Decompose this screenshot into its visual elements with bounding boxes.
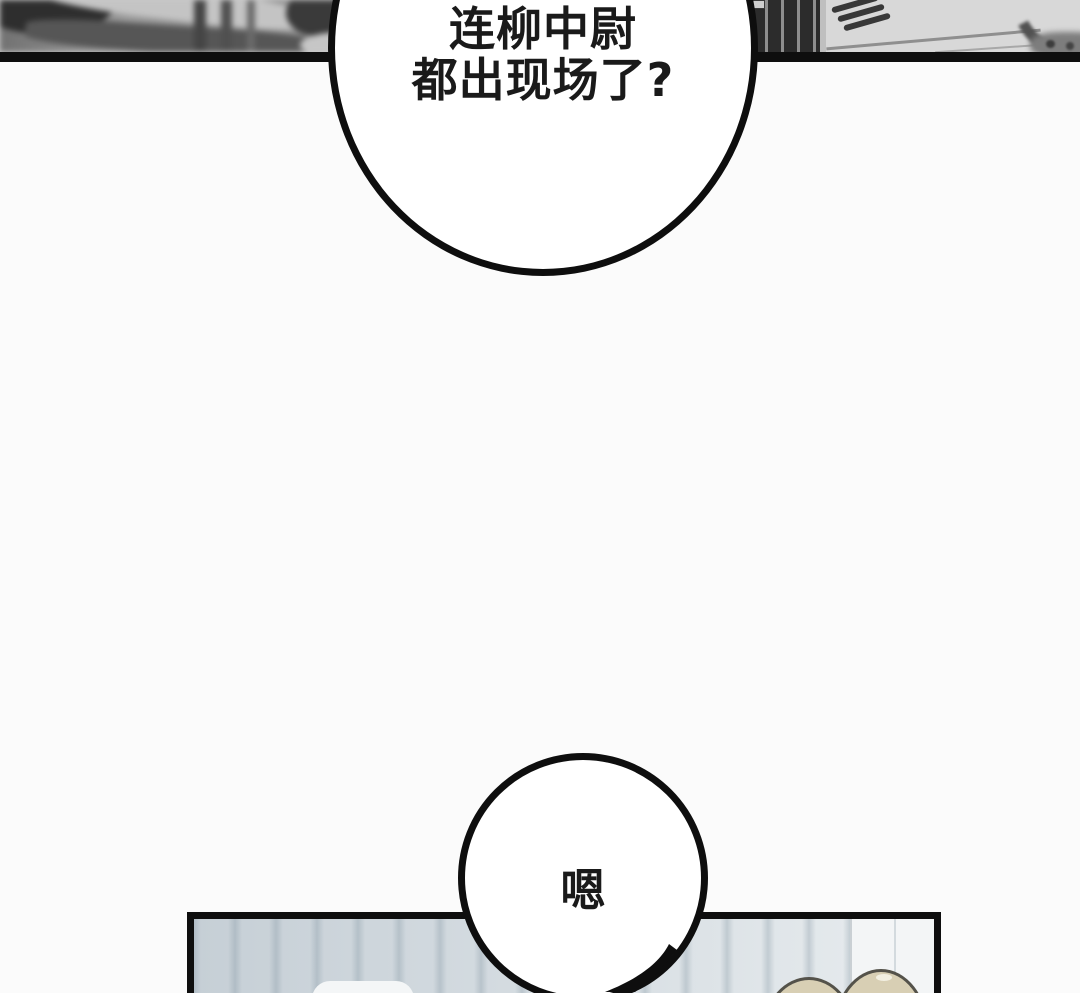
speech-bubble-tail [585, 944, 685, 993]
blurred-dot [1066, 42, 1074, 50]
speech-bubble-top-text: 连柳中尉 都出现场了? [328, 4, 758, 106]
desk-computer-art [730, 0, 1080, 52]
blurred-vertical-bar [221, 0, 232, 52]
bubble-text-line: 连柳中尉 [328, 4, 758, 55]
blurred-vertical-bar [194, 0, 206, 52]
white-bedding-shape [312, 981, 414, 993]
blurred-dot [1046, 40, 1055, 48]
hair-highlight [876, 974, 892, 981]
computer-tower [752, 0, 826, 52]
blurred-vertical-bar [247, 0, 255, 52]
comic-page: 连柳中尉 都出现场了? 嗯 [0, 0, 1080, 993]
speech-bubble-bottom-text: 嗯 [560, 838, 605, 919]
bubble-text-line: 都出现场了? [328, 55, 758, 106]
